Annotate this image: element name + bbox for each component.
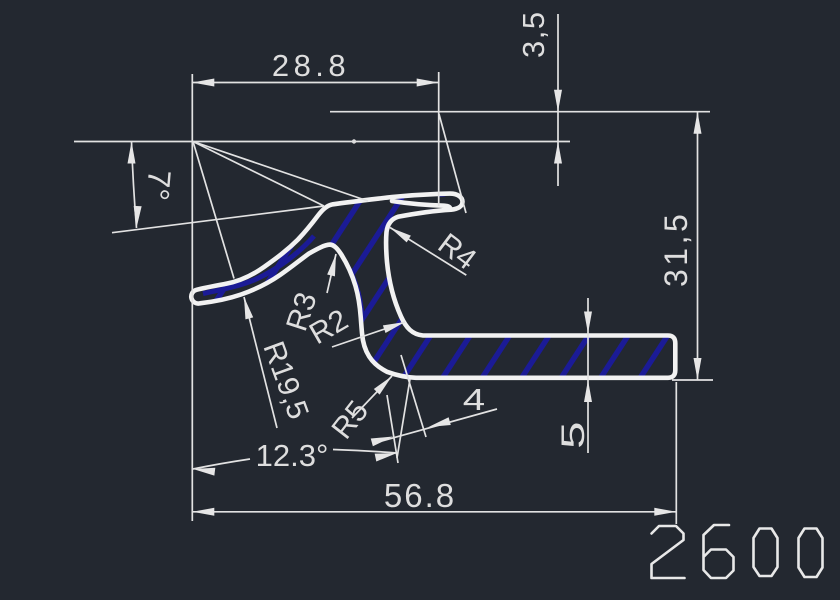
svg-text:4: 4 xyxy=(463,382,485,417)
svg-text:12.3°: 12.3° xyxy=(256,438,329,473)
svg-text:56.8: 56.8 xyxy=(384,477,456,514)
svg-text:7°: 7° xyxy=(139,168,178,202)
svg-text:R4: R4 xyxy=(432,227,482,276)
svg-text:31,5: 31,5 xyxy=(658,211,694,287)
svg-text:28.8: 28.8 xyxy=(272,48,350,83)
svg-text:3,5: 3,5 xyxy=(516,10,551,58)
svg-text:5: 5 xyxy=(555,421,591,449)
